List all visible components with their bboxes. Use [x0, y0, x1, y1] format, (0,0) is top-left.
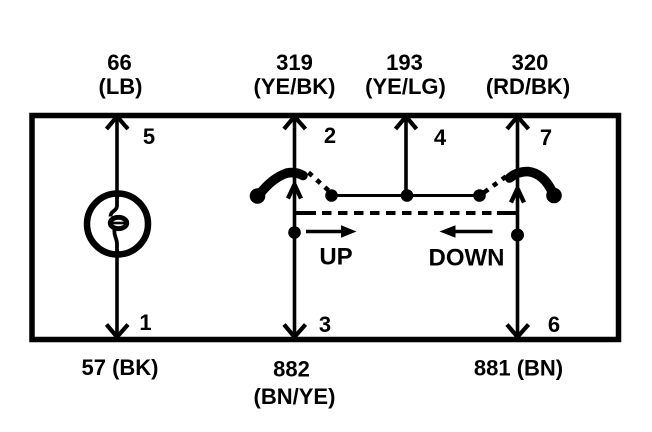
- svg-text:66: 66: [107, 50, 131, 75]
- svg-text:(RD/BK): (RD/BK): [486, 74, 570, 99]
- svg-text:1: 1: [139, 310, 151, 335]
- svg-text:DOWN: DOWN: [429, 245, 505, 272]
- svg-text:2: 2: [324, 123, 336, 148]
- svg-text:3: 3: [319, 312, 331, 337]
- svg-text:57 (BK): 57 (BK): [81, 355, 158, 380]
- svg-text:6: 6: [548, 312, 560, 337]
- svg-text:(BN/YE): (BN/YE): [254, 384, 336, 409]
- svg-text:5: 5: [143, 124, 155, 149]
- svg-text:882: 882: [273, 357, 310, 382]
- svg-text:(LB): (LB): [99, 74, 143, 99]
- svg-text:4: 4: [434, 125, 447, 150]
- svg-text:881 (BN): 881 (BN): [474, 356, 563, 381]
- svg-text:320: 320: [512, 50, 549, 75]
- svg-text:UP: UP: [319, 244, 352, 271]
- svg-text:7: 7: [540, 125, 552, 150]
- svg-text:319: 319: [276, 50, 313, 75]
- svg-text:(YE/BK): (YE/BK): [254, 74, 336, 99]
- svg-text:(YE/LG): (YE/LG): [365, 74, 446, 99]
- svg-text:193: 193: [386, 50, 423, 75]
